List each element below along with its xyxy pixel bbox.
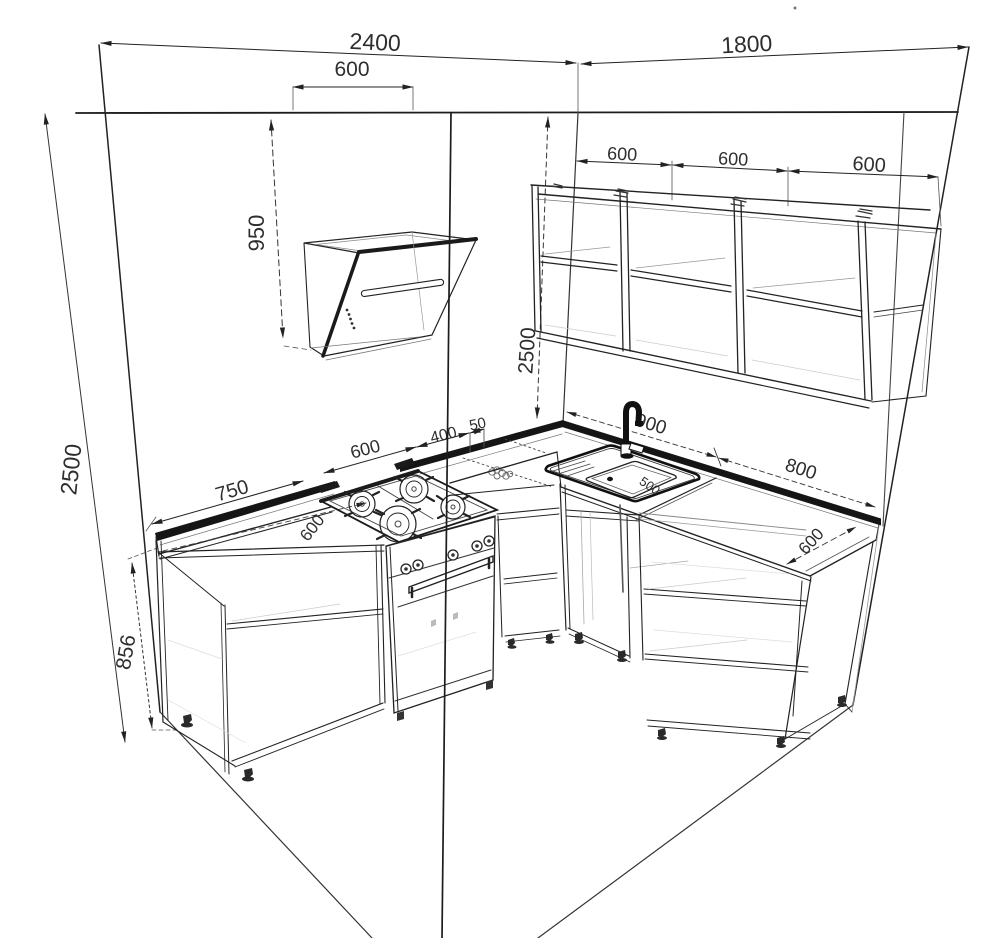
- svg-text:2400: 2400: [349, 28, 401, 56]
- svg-text:1800: 1800: [721, 30, 773, 59]
- svg-text:50: 50: [468, 414, 488, 434]
- svg-text:2500: 2500: [514, 327, 540, 375]
- svg-text:600: 600: [607, 143, 638, 165]
- svg-text:950: 950: [244, 215, 269, 252]
- svg-text:600: 600: [852, 153, 887, 177]
- svg-text:2500: 2500: [55, 443, 86, 497]
- svg-text:600: 600: [334, 58, 369, 81]
- svg-text:600: 600: [718, 148, 749, 170]
